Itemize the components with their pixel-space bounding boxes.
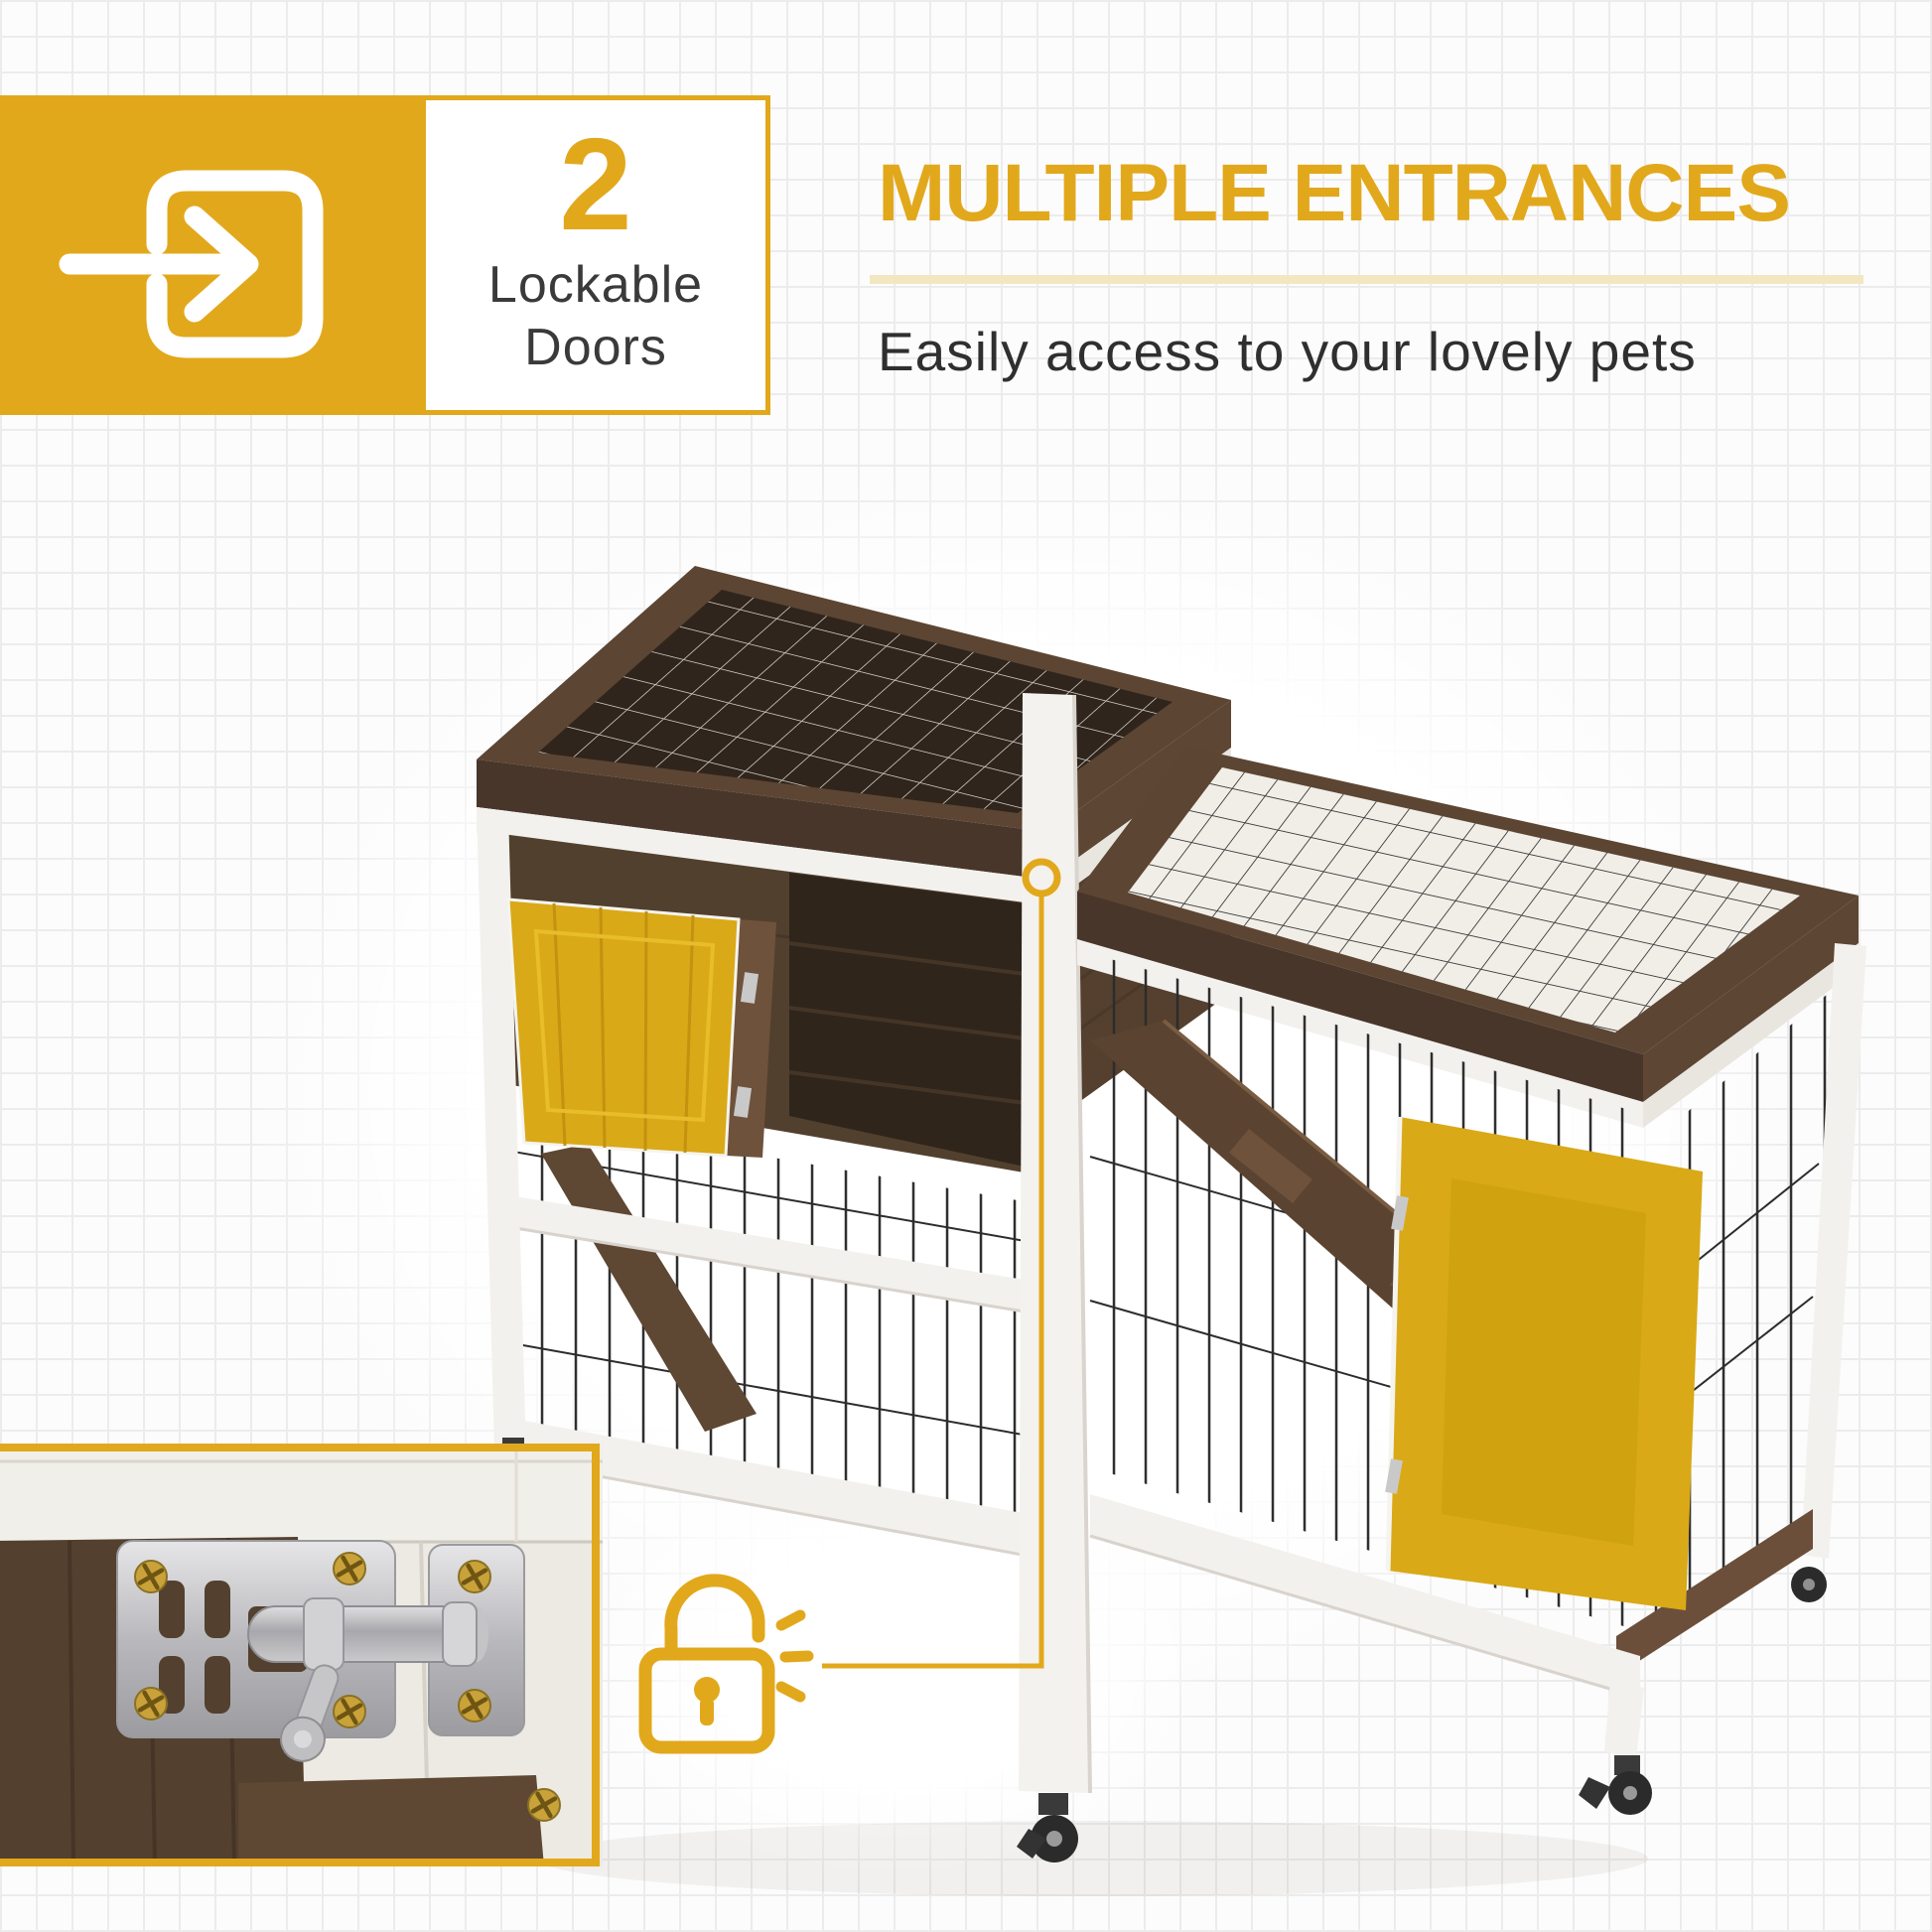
hutch-right-run <box>1077 747 1866 1815</box>
product-photo <box>0 0 1932 1932</box>
gold-screw-icon <box>135 1561 167 1592</box>
hutch-ground-shadow <box>536 1821 1648 1896</box>
open-padlock-icon <box>645 1581 808 1747</box>
gold-screw-icon <box>459 1561 490 1592</box>
right-lockable-door-highlight <box>1385 1117 1703 1610</box>
gold-screw-icon <box>135 1688 167 1720</box>
gold-screw-icon <box>334 1553 365 1585</box>
inset-bottom-plank <box>238 1775 544 1866</box>
gold-screw-icon <box>459 1690 490 1722</box>
left-lockable-door-highlight <box>508 899 776 1158</box>
rabbit-hutch-photo <box>477 566 1866 1863</box>
gold-screw-icon <box>528 1789 560 1821</box>
click-sound-dashes-icon <box>781 1615 808 1697</box>
gold-screw-icon <box>334 1696 365 1727</box>
latch-closeup-inset-photo <box>0 1445 603 1866</box>
